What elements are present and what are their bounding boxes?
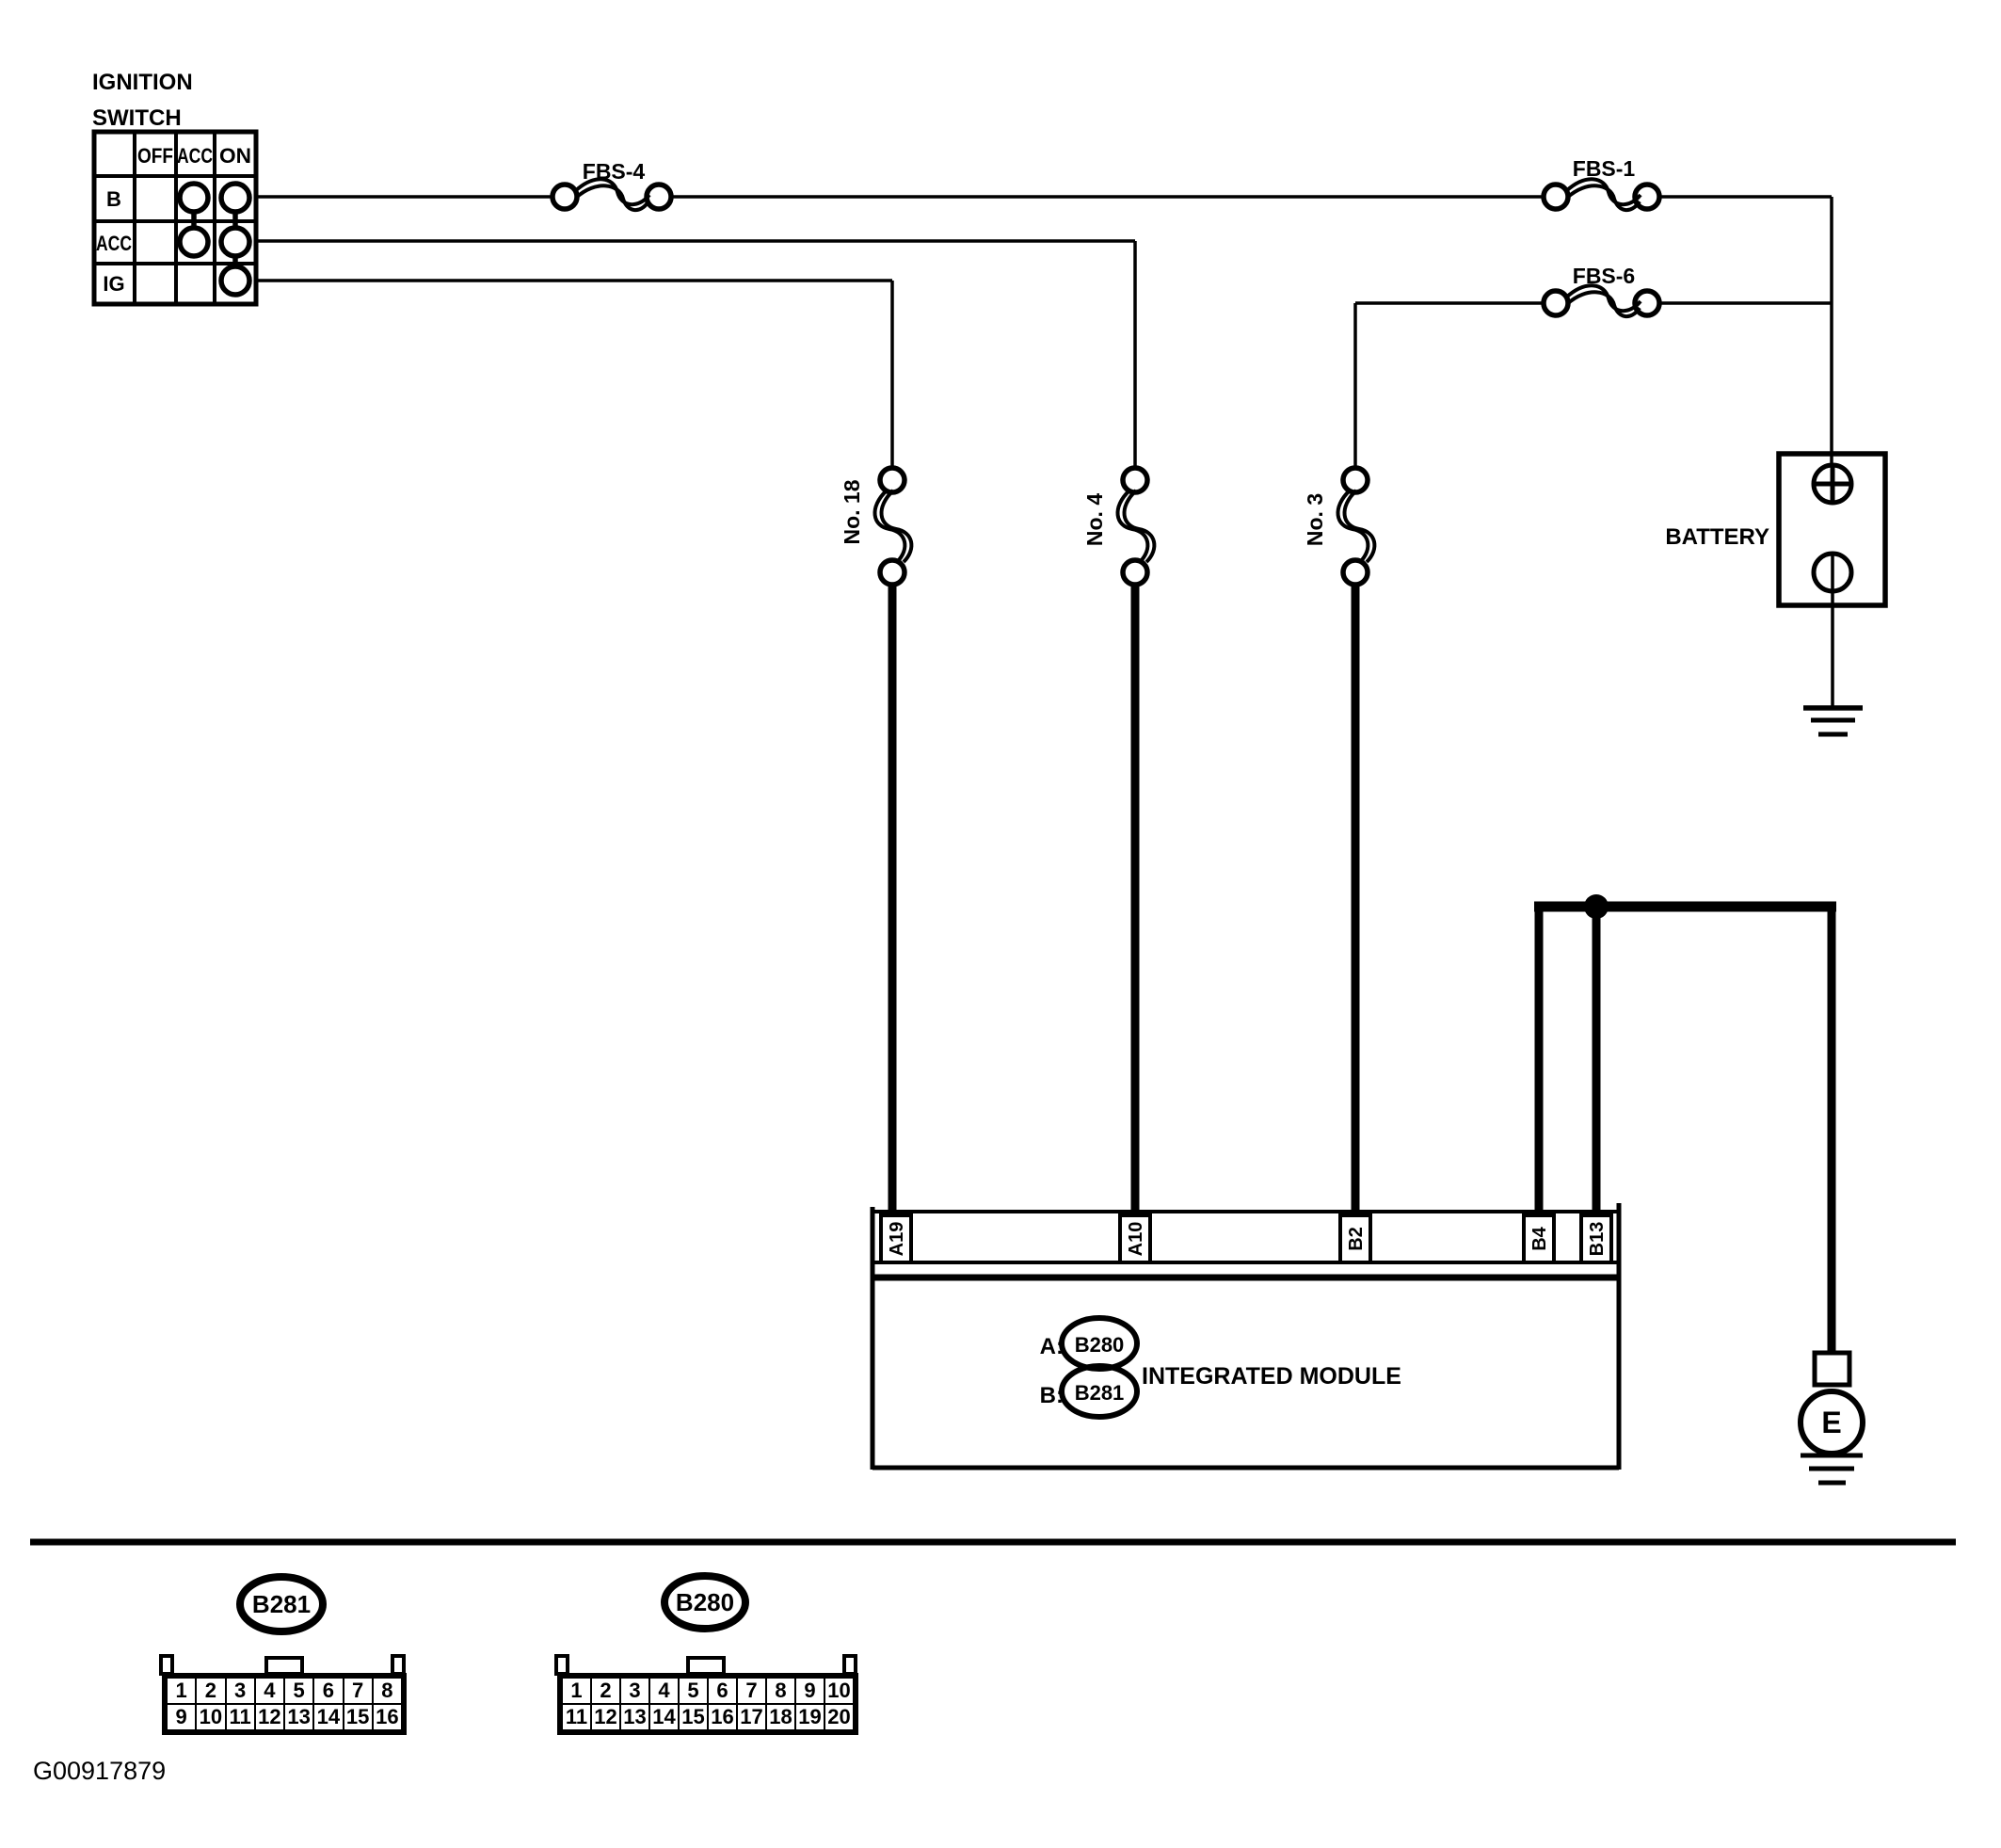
pin-cell: 15 <box>344 1704 373 1730</box>
pin-cell: 3 <box>620 1678 649 1704</box>
lamp-base <box>1815 1353 1849 1385</box>
module-conn-b-ref: B281 <box>1075 1381 1125 1405</box>
fuse-fbs6: FBS-6 <box>1544 264 1659 316</box>
junction-dot <box>1584 894 1609 919</box>
pin-cell: 7 <box>737 1678 766 1704</box>
fuse-no3-label: No. 3 <box>1303 493 1327 546</box>
module-connector-strip <box>872 1203 1619 1470</box>
battery-positive-terminal <box>1814 465 1851 503</box>
connector-b281-pin-grid: 12345678910111213141516 <box>162 1673 407 1735</box>
row-label-ig: IG <box>103 272 124 296</box>
fuse-fbs4: FBS-4 <box>552 159 671 210</box>
connector-b280-tabs <box>556 1656 856 1674</box>
lamp-ground-icon <box>1801 1455 1863 1483</box>
connector-b280-pin-grid: 1234567891011121314151617181920 <box>557 1673 858 1735</box>
ignition-switch-title-line2: SWITCH <box>92 105 182 131</box>
pin-cell: 16 <box>708 1704 737 1730</box>
col-label-on: ON <box>219 144 251 168</box>
pin-cell: 5 <box>679 1678 708 1704</box>
ignition-switch: IGNITION SWITCH OFF ACC ON B ACC IG <box>92 70 256 304</box>
pin-cell: 11 <box>562 1704 591 1730</box>
pin-cell: 4 <box>255 1678 284 1704</box>
row-label-acc: ACC <box>96 232 132 255</box>
pin-cell: 1 <box>562 1678 591 1704</box>
pin-cell: 20 <box>824 1704 854 1730</box>
pin-cell: 6 <box>313 1678 343 1704</box>
pin-label-b2: B2 <box>1346 1227 1367 1251</box>
ground-point-e: E <box>1801 1353 1863 1483</box>
battery-label: BATTERY <box>1665 524 1769 550</box>
battery-negative-terminal <box>1814 554 1851 591</box>
pin-cell: 7 <box>344 1678 373 1704</box>
pin-cell: 2 <box>591 1678 620 1704</box>
pin-cell: 13 <box>620 1704 649 1730</box>
integrated-module: A19 A10 B2 B4 B13 A: B280 B: B281 INTEGR… <box>872 1203 1619 1470</box>
pin-label-b4: B4 <box>1529 1226 1550 1250</box>
fuse-fbs1-label: FBS-1 <box>1573 156 1636 181</box>
schematic-canvas: IGNITION SWITCH OFF ACC ON B ACC IG <box>0 0 2001 1848</box>
connector-callout-b280: B280 <box>556 1576 856 1674</box>
col-label-acc: ACC <box>177 144 213 168</box>
fuse-fbs6-label: FBS-6 <box>1573 264 1635 288</box>
pin-cell: 14 <box>313 1704 343 1730</box>
pin-cell: 10 <box>824 1678 854 1704</box>
fuse-fbs6-element <box>1566 285 1641 316</box>
pin-label-b13: B13 <box>1587 1222 1608 1257</box>
pin-cell: 12 <box>255 1704 284 1730</box>
pin-label-a19: A19 <box>887 1222 907 1257</box>
pin-cell: 18 <box>766 1704 795 1730</box>
fuse-no18-label: No. 18 <box>840 479 864 544</box>
fuse-no3: No. 3 <box>1303 468 1374 585</box>
pin-cell: 10 <box>196 1704 225 1730</box>
lamp-label: E <box>1821 1406 1841 1439</box>
connector-b281-tabs <box>161 1656 404 1674</box>
pin-cell: 1 <box>167 1678 196 1704</box>
fuse-fbs1-element <box>1566 179 1641 210</box>
col-label-off: OFF <box>137 144 173 168</box>
pin-cell: 11 <box>226 1704 255 1730</box>
pin-cell: 14 <box>649 1704 679 1730</box>
pin-label-a10: A10 <box>1126 1222 1146 1257</box>
pin-cell: 12 <box>591 1704 620 1730</box>
pin-cell: 8 <box>373 1678 402 1704</box>
ignition-switch-title-line1: IGNITION <box>92 70 193 95</box>
pin-cell: 17 <box>737 1704 766 1730</box>
battery-ground-icon <box>1803 708 1863 734</box>
module-conn-a-ref: B280 <box>1075 1333 1125 1357</box>
pin-cell: 9 <box>167 1704 196 1730</box>
module-pin-boxes <box>881 1215 1611 1262</box>
pin-cell: 8 <box>766 1678 795 1704</box>
fuse-fbs1: FBS-1 <box>1544 156 1659 210</box>
fuse-fbs4-element <box>575 179 649 210</box>
fuse-no4-label: No. 4 <box>1082 493 1107 546</box>
wires-thin <box>256 197 1832 469</box>
pin-cell: 9 <box>795 1678 824 1704</box>
module-title: INTEGRATED MODULE <box>1142 1363 1401 1390</box>
pin-cell: 2 <box>196 1678 225 1704</box>
figure-id: G00917879 <box>33 1757 166 1785</box>
pin-cell: 19 <box>795 1704 824 1730</box>
battery: BATTERY <box>1665 454 1885 734</box>
pin-cell: 15 <box>679 1704 708 1730</box>
connector-b280-id: B280 <box>676 1588 734 1616</box>
fuse-no18: No. 18 <box>840 468 911 585</box>
pin-cell: 3 <box>226 1678 255 1704</box>
wiring-diagram-page: IGNITION SWITCH OFF ACC ON B ACC IG <box>0 0 2001 1848</box>
row-label-b: B <box>106 187 121 211</box>
pin-cell: 13 <box>284 1704 313 1730</box>
pin-cell: 4 <box>649 1678 679 1704</box>
pin-cell: 6 <box>708 1678 737 1704</box>
fuse-no4: No. 4 <box>1082 468 1154 585</box>
pin-cell: 5 <box>284 1678 313 1704</box>
connector-b281-id: B281 <box>252 1590 311 1618</box>
pin-cell: 16 <box>373 1704 402 1730</box>
connector-callout-b281: B281 <box>161 1577 404 1674</box>
